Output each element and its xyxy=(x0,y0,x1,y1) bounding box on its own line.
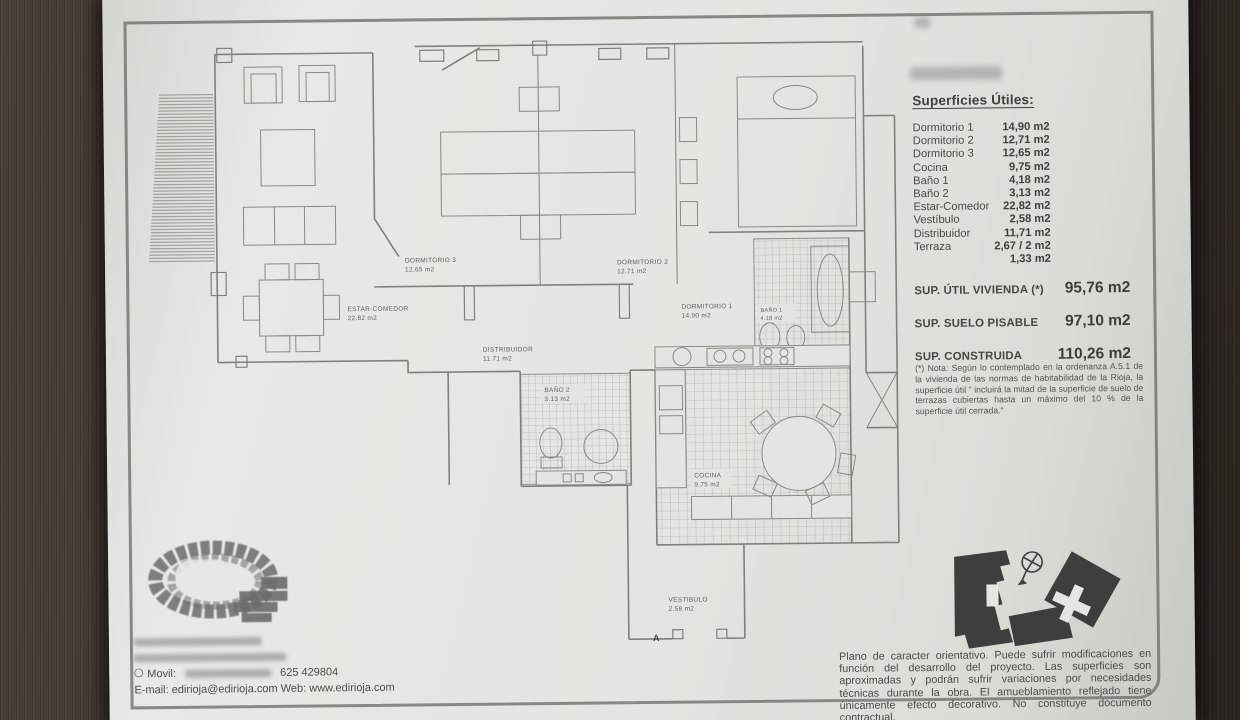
building-site-key xyxy=(950,545,1131,655)
building-footprint xyxy=(954,549,1121,649)
total-row-suelo-pisable: SUP. SUELO PISABLE 97,10 m2 xyxy=(915,312,1131,332)
redacted-text xyxy=(134,653,286,663)
bedroom1-furniture xyxy=(737,76,857,227)
edirioja-logo xyxy=(135,539,304,635)
entrance-marker: A xyxy=(653,633,660,643)
room-area-bano1: 4.18 m2 xyxy=(761,316,783,322)
mobile-number: 625 429804 xyxy=(280,666,338,679)
room-area-dormitorio2: 12.71 m2 xyxy=(617,268,647,275)
footprint-notch xyxy=(986,584,998,606)
redacted-text xyxy=(910,66,1002,80)
redacted-text xyxy=(185,669,271,678)
room-label-dormitorio3: DORMITORIO 3 xyxy=(405,257,456,265)
total-row-util-vivienda: SUP. ÚTIL VIVIENDA (*) 95,76 m2 xyxy=(914,279,1130,299)
disclaimer-text: Plano de caracter orientativo. Puede suf… xyxy=(839,648,1152,720)
room-area-cocina: 9.75 m2 xyxy=(694,481,720,488)
floor-plan-sheet: ESTAR-COMEDOR 22.82 m2 DORMITORIO 3 12.6… xyxy=(102,0,1196,720)
room-area-bano2: 3.13 m2 xyxy=(544,396,570,403)
window-x-symbol xyxy=(866,372,898,427)
room-label-dormitorio1: DORMITORIO 1 xyxy=(681,303,732,311)
room-label-vestibulo: VESTIBULO xyxy=(668,596,707,603)
room-label-cocina: COCINA xyxy=(694,472,722,479)
room-area-distribuidor: 11.71 m2 xyxy=(483,355,512,362)
room-label-bano2: BAÑO 2 xyxy=(544,385,570,394)
mobile-label: Movil: xyxy=(147,668,176,680)
room-label-distribuidor: DISTRIBUIDOR xyxy=(483,346,533,354)
room-label-estar-comedor: ESTAR-COMEDOR xyxy=(347,306,408,314)
north-arrow-icon xyxy=(1019,552,1042,584)
phone-icon xyxy=(134,668,143,677)
contact-block: Movil: 625 429804 E-mail: edirioja@ediri… xyxy=(134,631,495,699)
terrace-hatch xyxy=(147,93,215,264)
surface-row: 1,33 m2 xyxy=(914,253,1051,268)
room-label-dormitorio2: DORMITORIO 2 xyxy=(617,259,668,267)
living-room-furniture xyxy=(241,65,340,352)
room-area-dormitorio3: 12.65 m2 xyxy=(405,266,435,273)
photo-background-wood-table: ESTAR-COMEDOR 22.82 m2 DORMITORIO 3 12.6… xyxy=(0,0,1240,720)
surfaces-table: Dormitorio 114,90 m2 Dormitorio 212,71 m… xyxy=(913,121,1052,267)
bedroom-furniture xyxy=(440,85,698,240)
room-area-vestibulo: 2.58 m2 xyxy=(669,606,695,613)
redacted-text xyxy=(914,17,930,28)
redacted-text xyxy=(134,637,262,646)
room-area-estar-comedor: 22.82 m2 xyxy=(348,315,378,322)
surfaces-title: Superficies Útiles: xyxy=(912,92,1034,108)
room-label-bano1: BAÑO 1 xyxy=(760,307,782,314)
surfaces-note: (*) Nota: Según lo contemplado en la ord… xyxy=(915,361,1144,417)
room-area-dormitorio1: 14.90 m2 xyxy=(682,312,712,319)
